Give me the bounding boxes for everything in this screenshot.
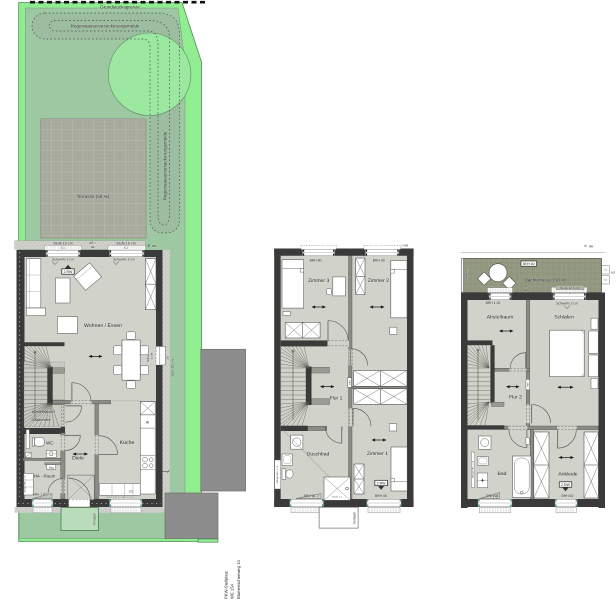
svg-text:Küche: Küche [120,440,135,446]
svg-text:Vordach: Vordach [93,513,97,526]
svg-text:Wohnen / Essen: Wohnen / Essen [84,323,122,329]
svg-text:PKW-Stellplatz: PKW-Stellplatz [223,571,228,599]
svg-text:Schwelle 2 cm: Schwelle 2 cm [556,301,578,305]
svg-text:Diele: Diele [72,456,84,462]
svg-text:BRH 1,05: BRH 1,05 [486,301,501,305]
svg-text:Schwelle 2 cm: Schwelle 2 cm [113,258,135,262]
svg-text:Flur 1: Flur 1 [330,395,343,401]
svg-text:BRH 90: BRH 90 [561,494,573,498]
svg-text:Vordach: Vordach [352,512,356,525]
svg-text:AL: AL [524,288,528,292]
svg-text:Stufe 20 cm: Stufe 20 cm [171,359,175,376]
svg-text:HbV: HbV [527,382,530,387]
svg-text:K: K [146,420,149,424]
svg-text:BRH 90: BRH 90 [523,262,535,266]
svg-text:WC: WC [46,440,54,445]
svg-text:Anlage Min. 1,15: Anlage Min. 1,15 [24,475,27,493]
svg-text:BRH 90: BRH 90 [373,258,385,262]
svg-text:Abstellraum /: Abstellraum / [32,409,56,414]
svg-text:Bad: Bad [498,471,507,477]
svg-text:GS: GS [129,489,133,493]
svg-text:Dachterrasse (50 %): Dachterrasse (50 %) [524,277,567,282]
svg-text:BRH 90: BRH 90 [375,494,387,498]
svg-text:Garderobe: Garderobe [31,417,51,422]
svg-text:BRH 95: BRH 95 [304,494,316,498]
svg-text:2.RW: 2.RW [64,270,74,274]
svg-text:Blumenschenweg 14: Blumenschenweg 14 [236,559,241,599]
svg-text:BRH 1,00: BRH 1,00 [33,492,47,496]
svg-text:HbV: HbV [348,380,351,385]
svg-text:Schlafen: Schlafen [554,314,574,320]
svg-text:Abstellraum: Abstellraum [487,314,513,320]
svg-text:Regenwasserversickerungsmulde: Regenwasserversickerungsmulde [71,24,140,29]
svg-text:(C₂): (C₂) [124,247,129,250]
svg-text:Naßf. 1,05 m² / Bel. 1,1 m²: Naßf. 1,05 m² / Bel. 1,1 m² [106,496,133,499]
svg-text:Duschbad: Duschbad [307,451,330,457]
svg-text:Zimmer 2: Zimmer 2 [368,278,389,284]
svg-text:Zimmer 3: Zimmer 3 [308,278,329,284]
svg-text:Nutzfl. 1,2: Nutzfl. 1,2 [332,496,343,499]
svg-text:Ankleide: Ankleide [558,472,577,478]
svg-text:2.RW: 2.RW [561,483,571,487]
svg-text:Regenwasserversickerungsmulde: Regenwasserversickerungsmulde [163,131,168,200]
svg-text:Grundstücksgrenze: Grundstücksgrenze [100,5,140,10]
svg-text:Flur 2: Flur 2 [509,395,522,401]
svg-text:+ RR: + RR [401,243,409,247]
svg-text:Stufe 15 cm: Stufe 15 cm [116,241,136,245]
svg-text:RR: RR [589,244,594,248]
svg-text:BRH 90: BRH 90 [486,494,498,498]
svg-text:Hzg: Hzg [49,466,54,469]
svg-text:HA - Raum: HA - Raum [34,474,56,479]
svg-text:Zimmer 1: Zimmer 1 [367,451,388,457]
svg-text:Ablage Min. 1,15: Ablage Min. 1,15 [471,460,474,478]
svg-text:(C₂): (C₂) [61,247,66,250]
svg-text:AL: AL [91,245,95,249]
svg-text:Stufe 15 cm: Stufe 15 cm [53,241,73,245]
svg-text:Schwelle 2 cm: Schwelle 2 cm [52,258,74,262]
svg-text:WE 154: WE 154 [230,583,235,599]
svg-text:2.RW: 2.RW [377,482,387,486]
svg-text:Ablage Min. 1,15: Ablage Min. 1,15 [276,465,279,483]
svg-text:NO: NO [611,271,616,275]
svg-text:Terrasse (50 %): Terrasse (50 %) [77,194,110,199]
svg-text:Sattelrand: Sattelrand [465,268,468,280]
svg-text:25: 25 [165,356,169,360]
svg-text:BRH 90: BRH 90 [310,258,322,262]
svg-text:Stufe 12,5 cm: Stufe 12,5 cm [560,286,580,290]
svg-text:2 cm: 2 cm [149,352,153,359]
